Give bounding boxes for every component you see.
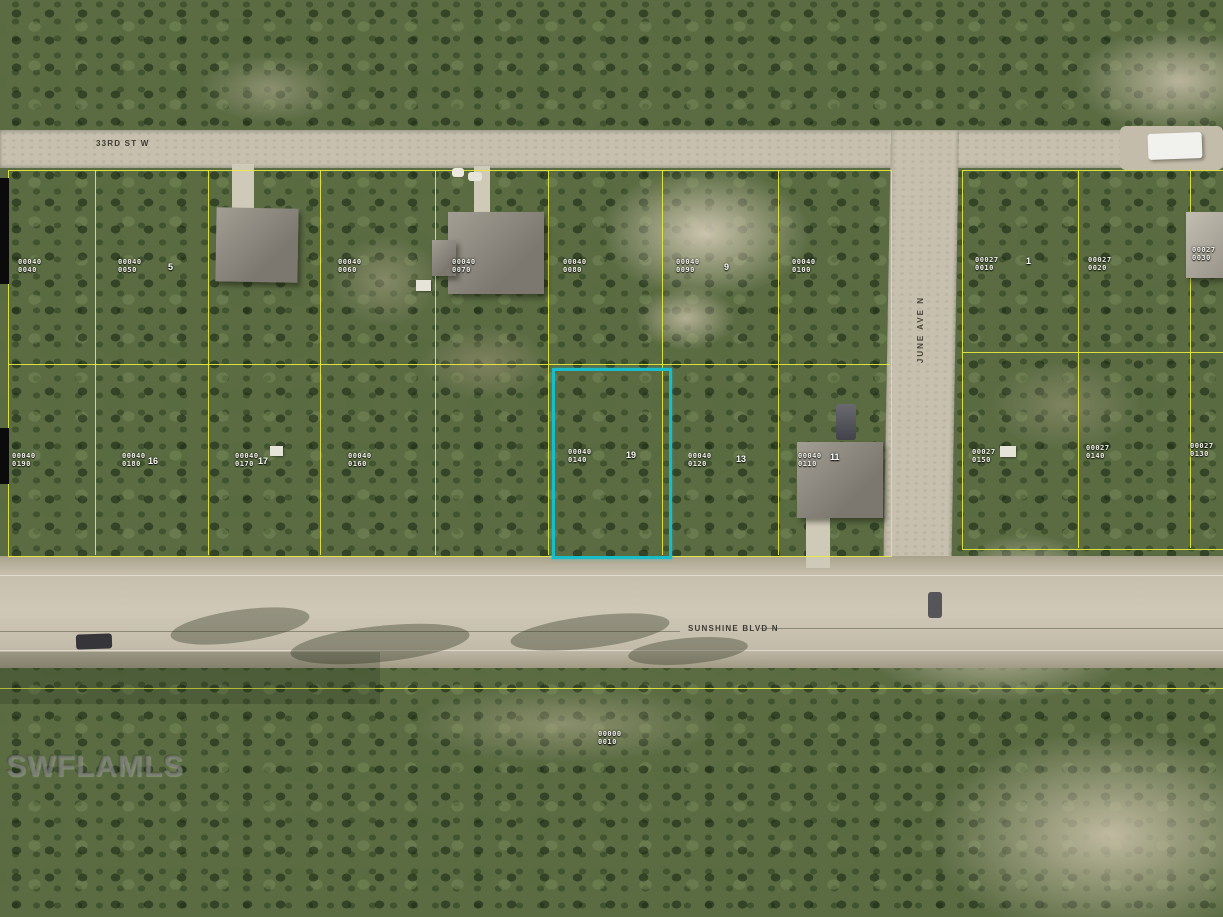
parcel-line (8, 364, 890, 365)
parcel-block-number: 00040 (452, 258, 476, 266)
parcel-label: 000000010 (598, 730, 622, 746)
lot-numeral: 17 (258, 456, 268, 466)
parcel-lot-number: 0050 (118, 266, 142, 274)
street-label-33rd-st-w: 33RD ST W (96, 139, 149, 148)
parcel-block-number: 00040 (235, 452, 259, 460)
lot-numeral: 16 (148, 456, 158, 466)
parcel-lot-number: 0160 (348, 460, 372, 468)
parcel-label: 000400040 (18, 258, 42, 274)
sand-clearing (990, 360, 1140, 450)
parcel-block-number: 00040 (792, 258, 816, 266)
parcel-lot-number: 0020 (1088, 264, 1112, 272)
lot-numeral: 1 (1026, 256, 1031, 266)
sand-clearing (930, 730, 1223, 917)
parcel-lot-number: 0010 (975, 264, 999, 272)
parcel-lot-number: 0070 (452, 266, 476, 274)
parcel-lot-number: 0030 (1192, 254, 1216, 262)
parcel-block-number: 00040 (122, 452, 146, 460)
shed-roof (1000, 446, 1016, 457)
parcel-block-number: 00040 (568, 448, 592, 456)
parcel-lot-number: 0190 (12, 460, 36, 468)
parcel-block-number: 00040 (12, 452, 36, 460)
white-boat-trailer (452, 168, 464, 177)
sand-clearing (420, 326, 550, 400)
parcel-block-number: 00027 (1190, 442, 1214, 450)
parcel-block-number: 00000 (598, 730, 622, 738)
road-sunshine-blvd (0, 556, 1223, 668)
parcel-lot-number: 0170 (235, 460, 259, 468)
parcel-line (548, 170, 549, 555)
parcel-block-number: 00027 (1086, 444, 1110, 452)
car-on-side-road (928, 592, 942, 618)
street-label-sunshine-blvd: SUNSHINE BLVD N (688, 624, 779, 633)
aerial-parcel-map: 33RD ST W SUNSHINE BLVD N JUNE AVE N 000… (0, 0, 1223, 917)
parcel-block-number: 00040 (798, 452, 822, 460)
parcel-label: 000400070 (452, 258, 476, 274)
parcel-lot-number: 0140 (1086, 452, 1110, 460)
street-label-june-ave-n: JUNE AVE N (916, 296, 925, 363)
parcel-line (1078, 170, 1079, 548)
parcel-label: 000400090 (676, 258, 700, 274)
parcel-line (95, 170, 96, 555)
parcel-label: 000400080 (563, 258, 587, 274)
shed-roof (270, 446, 283, 456)
parcel-line (208, 170, 209, 555)
parcel-lot-number: 0040 (18, 266, 42, 274)
parcel-label: 000400160 (348, 452, 372, 468)
parcel-block-number: 00027 (972, 448, 996, 456)
parcel-label: 000400170 (235, 452, 259, 468)
mls-watermark: SWFLAMLS (6, 750, 184, 784)
parcel-lot-number: 0090 (676, 266, 700, 274)
sand-clearing (200, 56, 340, 122)
lot-numeral: 9 (724, 262, 729, 272)
parcel-block-number: 00040 (676, 258, 700, 266)
parcel-block-number: 00040 (348, 452, 372, 460)
parcel-line (778, 170, 779, 555)
parcel-label: 000400060 (338, 258, 362, 274)
parcel-label: 000270010 (975, 256, 999, 272)
image-artifact-bar (0, 178, 9, 284)
parcel-line (962, 352, 1223, 353)
parcel-lot-number: 0130 (1190, 450, 1214, 458)
driveway (232, 164, 254, 210)
parcel-block-number: 00040 (18, 258, 42, 266)
parcel-label: 000400110 (798, 452, 822, 468)
parcel-block-number: 00027 (975, 256, 999, 264)
parcel-lot-number: 0080 (563, 266, 587, 274)
parcel-label: 000270150 (972, 448, 996, 464)
parcel-block-outline (962, 170, 1223, 550)
image-artifact-bar (0, 428, 9, 484)
house-roof (448, 212, 544, 294)
parcel-line (435, 170, 436, 555)
parcel-label: 000270030 (1192, 246, 1216, 262)
house-roof-partial (1186, 212, 1223, 278)
parcel-label: 000400180 (122, 452, 146, 468)
white-truck (1148, 132, 1203, 160)
sand-clearing (600, 168, 810, 298)
parcel-label-subject: 000400140 (568, 448, 592, 464)
parcel-lot-number: 0100 (792, 266, 816, 274)
shed-roof (416, 280, 431, 291)
house-roof (215, 207, 298, 282)
parcel-label: 000270140 (1086, 444, 1110, 460)
parcel-block-number: 00040 (688, 452, 712, 460)
parcel-lot-number: 0110 (798, 460, 822, 468)
lot-numeral: 13 (736, 454, 746, 464)
parcel-line (0, 688, 1223, 689)
parcel-lot-number: 0120 (688, 460, 712, 468)
parcel-lot-number: 0180 (122, 460, 146, 468)
parcel-block-number: 00027 (1192, 246, 1216, 254)
parcel-lot-number: 0140 (568, 456, 592, 464)
parcel-block-number: 00040 (563, 258, 587, 266)
parcel-block-number: 00027 (1088, 256, 1112, 264)
parcel-label: 000400100 (792, 258, 816, 274)
parcel-label: 000400120 (688, 452, 712, 468)
sand-clearing (636, 286, 736, 350)
parcel-label: 000400050 (118, 258, 142, 274)
sand-clearing (1075, 28, 1223, 134)
lot-numeral: 11 (830, 452, 840, 462)
sand-trail (410, 686, 720, 762)
parcel-label: 000400190 (12, 452, 36, 468)
parcel-lot-number: 0010 (598, 738, 622, 746)
parcel-lot-number: 0150 (972, 456, 996, 464)
parked-car (836, 404, 856, 440)
lot-numeral: 19 (626, 450, 636, 460)
white-boat-trailer (468, 172, 482, 181)
parcel-block-number: 00040 (338, 258, 362, 266)
parcel-label: 000270130 (1190, 442, 1214, 458)
parcel-lot-number: 0060 (338, 266, 362, 274)
lot-numeral: 5 (168, 262, 173, 272)
parcel-block-number: 00040 (118, 258, 142, 266)
car-on-road (76, 633, 113, 649)
road-33rd-st-w (0, 130, 1223, 168)
parcel-label: 000270020 (1088, 256, 1112, 272)
parcel-line (320, 170, 321, 555)
driveway (806, 514, 830, 568)
